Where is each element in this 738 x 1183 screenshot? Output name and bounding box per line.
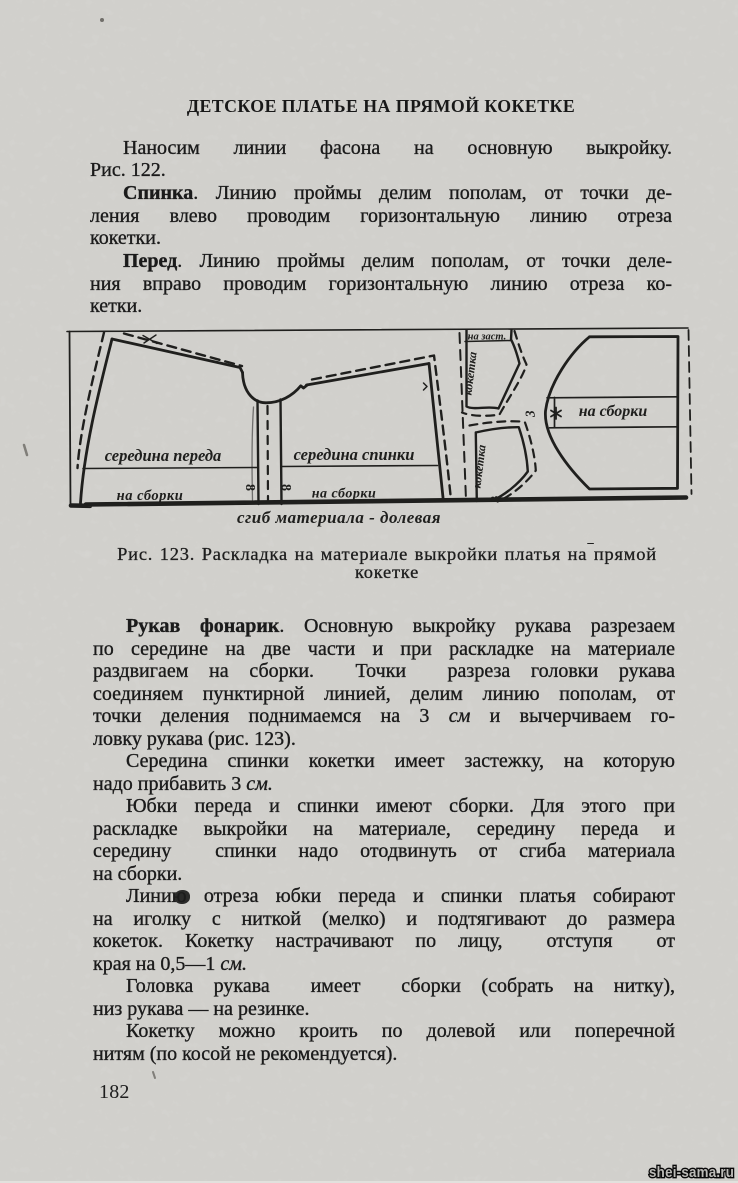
svg-text:на заст.: на заст. <box>468 332 507 343</box>
svg-text:на сборки: на сборки <box>117 488 184 504</box>
svg-text:кокетка: кокетка <box>469 444 488 489</box>
svg-text:середина спинки: середина спинки <box>294 445 415 464</box>
svg-text:сгиб материала - долевая: сгиб материала - долевая <box>237 508 441 527</box>
svg-text:8: 8 <box>242 484 257 491</box>
svg-text:8: 8 <box>278 484 293 491</box>
svg-text:shei-sama.ru: shei-sama.ru <box>649 1165 734 1181</box>
svg-text:на сборки: на сборки <box>312 487 377 502</box>
svg-text:3: 3 <box>522 410 538 419</box>
svg-text:середина переда: середина переда <box>105 446 222 465</box>
svg-text:кокетка: кокетка <box>460 351 479 396</box>
svg-text:на сборки: на сборки <box>579 403 648 420</box>
